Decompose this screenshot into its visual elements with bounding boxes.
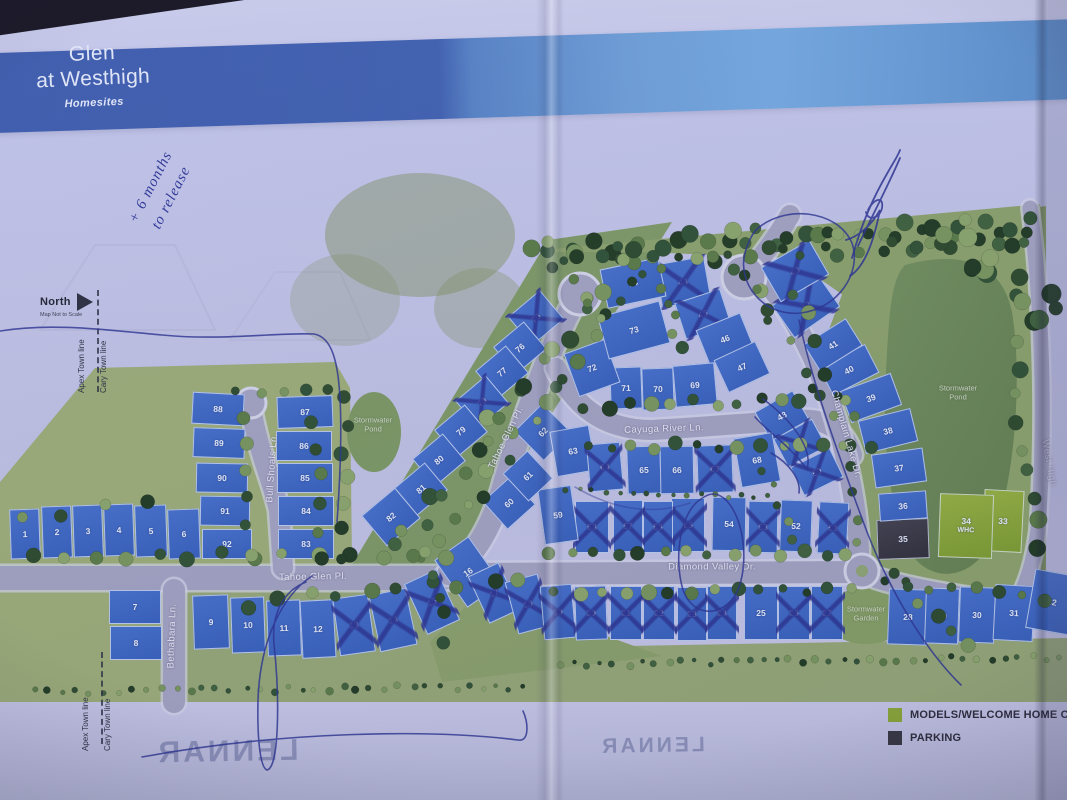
lot-number: 33 [998,516,1008,525]
lot-number: 61 [521,470,534,483]
lot-6: 6 [167,508,201,559]
legend-swatch [888,708,902,722]
lot-number: 56 [653,523,662,532]
lot-69: 69 [672,362,718,408]
apex-town-line-label: Apex Town line [81,697,90,751]
lot-number: 22 [654,609,663,618]
page-right-margin [1048,0,1067,800]
lot-number: 47 [736,361,748,373]
lot-number: 9 [208,617,213,626]
lot-number: 53 [758,522,768,531]
lot-number: 18 [522,598,533,609]
lot-number: 64 [600,462,610,472]
lot-65: 65 [626,445,662,494]
lot-number: 85 [300,474,309,483]
lot-51: 51 [817,501,850,554]
lot-70: 70 [641,367,674,410]
lot-number: 6 [181,529,186,538]
lot-number: 38 [882,426,893,437]
lot-55: 55 [671,498,705,552]
lot-number: 24 [717,609,726,618]
lot-number: 21 [621,609,630,618]
lot-20: 20 [574,585,608,640]
lot-90: 90 [196,463,249,494]
lot-number: 40 [843,364,855,376]
lot-number: 82 [385,511,398,524]
lot-10: 10 [230,596,266,653]
lot-number: 48 [776,410,789,422]
lot-number: 54 [724,519,734,528]
lot-number: 83 [301,540,310,549]
lot-57: 57 [613,500,643,552]
lot-number: 71 [621,383,631,392]
lot-92: 92 [202,529,252,559]
lot-86: 86 [276,431,332,461]
lot-73: 73 [597,300,670,359]
lot-number: 55 [683,521,692,530]
lot-52: 52 [779,499,813,552]
lot-5: 5 [134,504,168,557]
lot-84: 84 [278,496,334,526]
lot-number: 8 [134,639,139,648]
lot-88: 88 [191,392,245,427]
lot-58: 58 [575,501,609,553]
lot-53: 53 [748,501,779,554]
lot-23: 23 [677,587,707,641]
lot-number: 29 [937,611,947,620]
lot-7: 7 [109,590,161,624]
community-title-line2: at Westhigh [18,63,169,95]
lot-number: 37 [894,463,905,473]
lot-number: 73 [628,324,639,335]
lot-29: 29 [924,587,960,644]
lot-number: 81 [415,483,428,496]
lot-number: 4 [116,525,121,534]
cary-town-line-label: Cary Town line [99,341,108,393]
lot-number: 91 [220,506,230,515]
lot-number: 12 [313,624,323,633]
page-fold [536,0,564,800]
lot-2: 2 [41,505,73,558]
lot-1: 1 [9,508,41,559]
lot-number: 92 [222,540,231,549]
lot-34: 34WHC [938,493,994,559]
lot-91: 91 [200,496,251,527]
lot-number: 69 [690,380,700,390]
lot-3: 3 [72,504,104,557]
lot-number: 31 [1009,608,1019,617]
lot-68: 68 [733,432,781,488]
lot-11: 11 [266,599,302,656]
lot-number: 68 [752,455,763,465]
lot-number: 36 [898,501,908,511]
lot-85: 85 [277,463,333,493]
lot-27: 27 [811,586,843,640]
lot-number: 39 [865,392,877,404]
lot-66: 66 [660,446,695,495]
lot-number: 76 [514,342,527,355]
lot-number: 90 [217,473,227,482]
lot-number: 43 [789,265,802,277]
lot-number: 34 [961,517,971,526]
lot-number: 41 [827,339,840,352]
lot-number: 67 [710,464,720,473]
lot-number: 57 [623,522,632,531]
lot-number: 60 [502,497,515,510]
lot-number: 14 [387,615,398,626]
lot-number: 63 [568,446,579,456]
lot-number: 1 [22,529,27,538]
lot-number: 80 [433,454,446,467]
lot-number: 7 [133,603,138,612]
lot-number: 27 [822,609,831,618]
lot-number: 58 [587,523,596,532]
brochure-photo: LENNAR LENNAR 12345678910111213141516171… [0,0,1067,800]
lot-number: 84 [301,507,310,516]
lot-9: 9 [192,594,230,649]
map-scale-note: Map Not to Scale [40,312,93,318]
lot-number: 49 [794,437,807,449]
lot-number: 87 [300,407,310,416]
north-indicator: North Map Not to Scale [40,293,93,318]
welcome-home-center-label: WHC [957,527,974,535]
lot-number: 52 [791,521,801,530]
lot-25: 25 [744,586,778,640]
lot-number: 17 [488,587,500,599]
lot-number: 5 [148,526,153,535]
lot-number: 77 [496,366,509,379]
lot-number: 30 [972,610,982,619]
lot-35: 35 [876,518,929,560]
lot-67: 67 [696,444,734,493]
lot-number: 46 [719,333,731,345]
legend-label: PARKING [910,732,961,744]
lot-number: 74 [627,278,638,289]
lot-83: 83 [278,529,334,559]
lot-number: 10 [243,620,253,629]
lot-number: 15 [426,596,438,608]
north-label: North [40,296,71,308]
lot-number: 72 [586,362,598,374]
lot-number: 79 [455,425,468,438]
lot-4: 4 [103,503,135,556]
lot-number: 26 [789,609,798,618]
lot-number: 28 [903,612,913,621]
lot-number: 35 [898,534,908,543]
lot-number: 88 [213,404,223,413]
lot-54: 54 [712,497,747,552]
lot-number: 86 [299,442,308,451]
lot-number: 23 [687,610,696,619]
lot-number: 44 [678,277,689,287]
lot-number: 78 [476,396,489,409]
north-arrow-icon [77,293,93,311]
lot-8: 8 [110,626,162,660]
cary-town-line-label: Cary Town line [103,699,112,751]
lot-89: 89 [192,427,245,459]
lot-56: 56 [643,501,673,553]
lot-number: 65 [639,465,649,474]
lot-number: 89 [214,438,224,447]
lot-number: 2 [54,527,59,536]
lot-64: 64 [586,442,624,493]
page-edge-shadow [1034,0,1048,800]
lot-number: 50 [811,466,823,478]
lot-21: 21 [610,586,642,640]
lot-22: 22 [643,586,675,640]
title-block: Glen at Westhigh Homesites [17,39,170,113]
lot-number: 42 [800,300,813,313]
lot-number: 70 [653,384,663,393]
lot-37: 37 [871,448,927,489]
apex-town-line-label: Apex Town line [77,339,86,393]
lot-26: 26 [778,586,810,640]
lot-number: 25 [756,609,765,618]
lot-number: 45 [697,308,709,319]
lot-number: 11 [279,623,288,632]
lot-87: 87 [276,395,333,429]
legend-swatch [888,731,902,745]
lot-number: 13 [349,620,360,630]
lot-number: 20 [586,608,596,617]
lot-number: 66 [672,465,682,474]
lot-number: 51 [828,523,838,532]
lot-24: 24 [707,586,737,640]
lot-number: 3 [85,526,90,535]
lot-28: 28 [887,588,929,645]
lot-30: 30 [958,586,996,643]
lot-36: 36 [878,490,928,521]
